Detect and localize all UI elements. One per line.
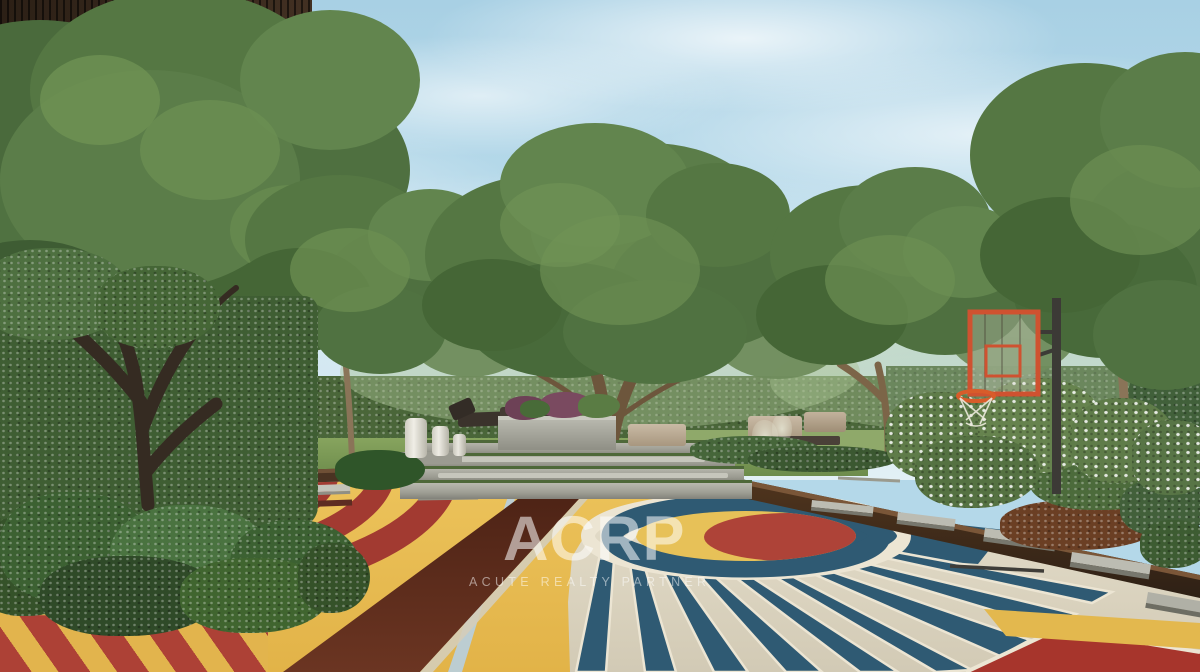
hoop-pole	[1052, 298, 1061, 494]
plant-pot	[453, 434, 466, 456]
basketball-hoop	[940, 290, 1080, 500]
brand-tagline: ACUTE REALTY PARTNER	[469, 575, 710, 589]
stone-bench	[628, 424, 686, 446]
brand-logo: ACRP	[503, 511, 710, 569]
plant-pot	[405, 418, 427, 458]
garden-basketball-court-render: ACRP ACUTE REALTY PARTNER	[0, 0, 1200, 672]
stone-bench	[804, 412, 846, 432]
watermark: ACRP ACUTE REALTY PARTNER	[503, 511, 710, 589]
raised-planter-box	[498, 416, 616, 450]
plant-pot	[432, 426, 449, 456]
step-ramp-bar	[438, 473, 728, 478]
hoop-backboard	[970, 312, 1038, 394]
shrub-green	[1140, 520, 1200, 568]
step-ramp-bar	[455, 457, 705, 462]
flower-bush	[1132, 420, 1200, 495]
